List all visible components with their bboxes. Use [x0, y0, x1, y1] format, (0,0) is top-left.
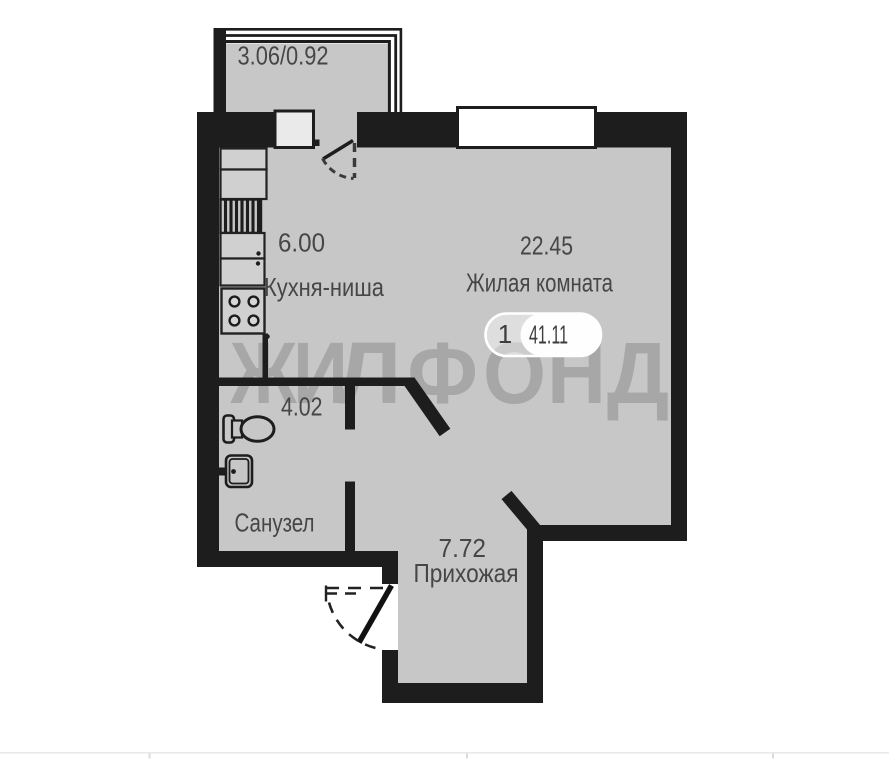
svg-text:1: 1 — [498, 319, 512, 349]
svg-text:Д: Д — [607, 325, 670, 422]
svg-text:4.02: 4.02 — [281, 392, 323, 422]
svg-text:Прихожая: Прихожая — [414, 558, 519, 588]
svg-text:41.11: 41.11 — [529, 320, 568, 350]
svg-text:Санузел: Санузел — [235, 508, 315, 538]
svg-text:6.00: 6.00 — [278, 228, 325, 258]
svg-text:Ф: Ф — [407, 325, 478, 422]
svg-text:3.06/0.92: 3.06/0.92 — [238, 41, 329, 71]
svg-text:Жилая комната: Жилая комната — [466, 268, 613, 298]
svg-text:22.45: 22.45 — [520, 231, 573, 261]
svg-text:Кухня-ниша: Кухня-ниша — [264, 272, 384, 302]
